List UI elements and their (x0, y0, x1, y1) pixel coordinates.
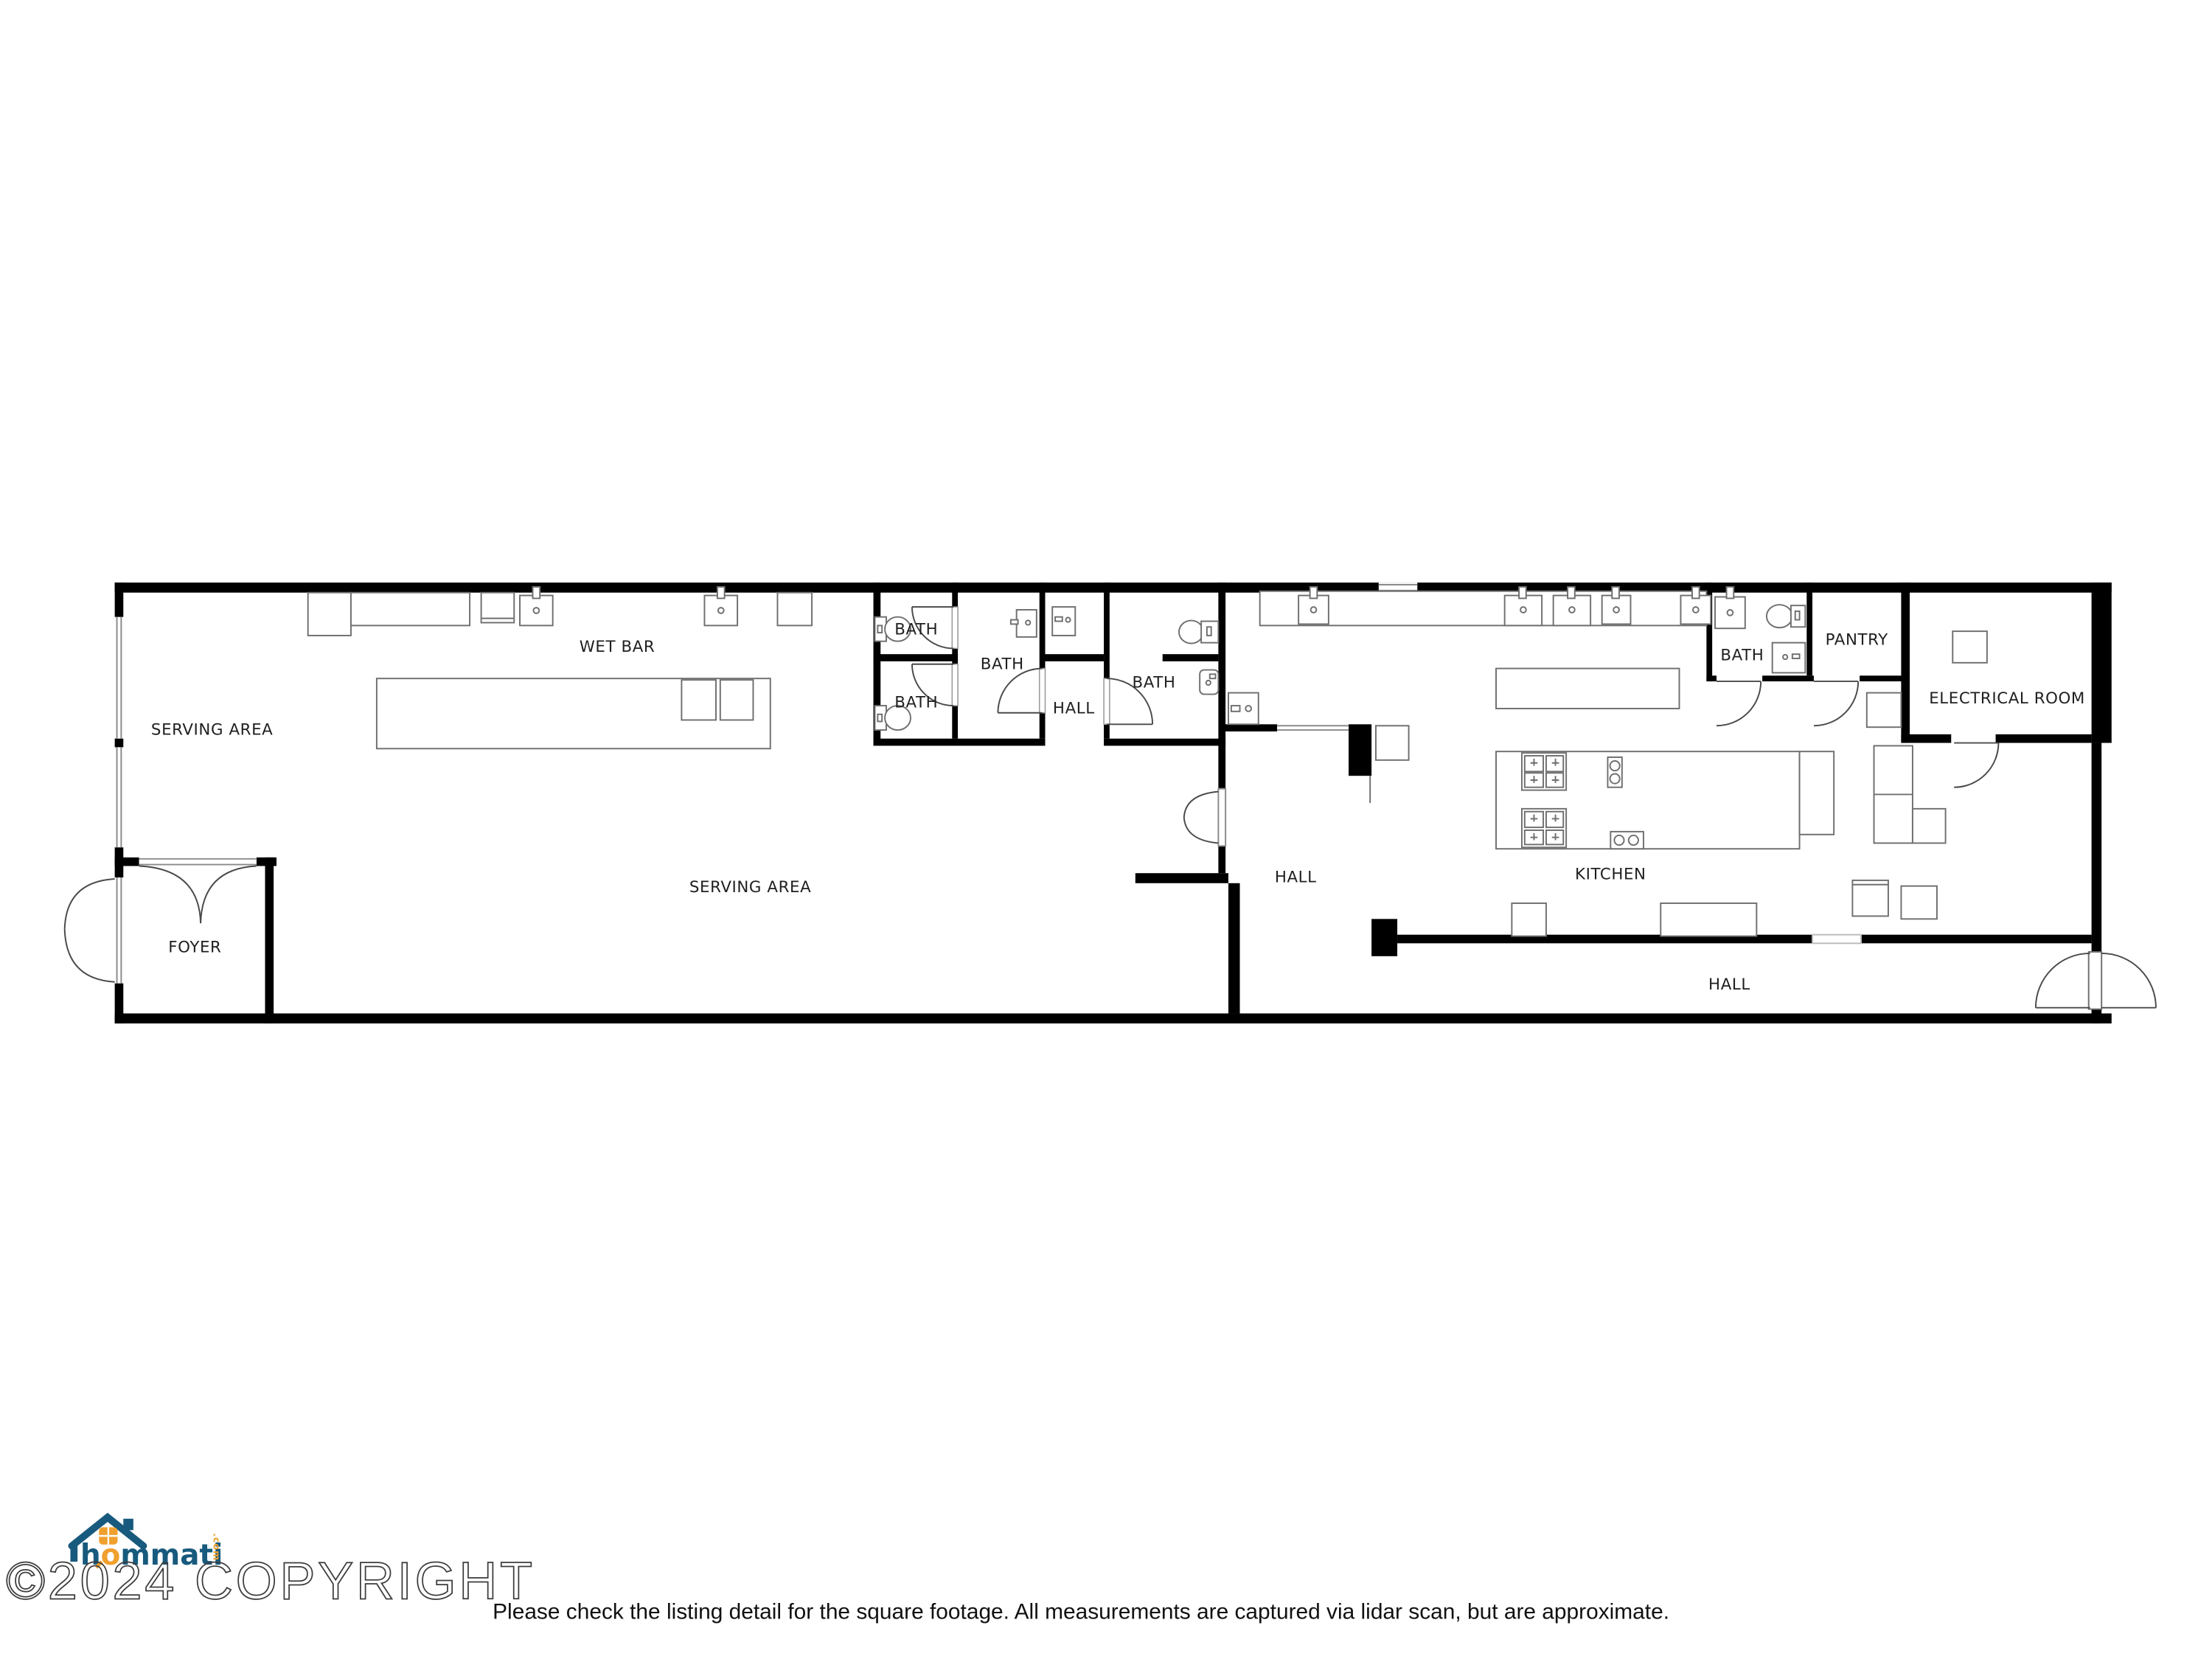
sink-symbol (1200, 670, 1218, 695)
wall-foyer-top (115, 858, 139, 866)
cabinet-symbol (1376, 726, 1409, 760)
wall-cluster-v1 (952, 582, 958, 739)
cabinet-symbol (1660, 903, 1756, 936)
sink-symbol (1011, 610, 1037, 637)
appliance-symbol (1800, 751, 1834, 835)
doors (65, 607, 2156, 1009)
wall-electrical-bottom (1996, 734, 2092, 743)
door-arc (65, 879, 115, 982)
wall-bottom (115, 1013, 2112, 1023)
door-opening (1218, 789, 1225, 846)
door-opening (1040, 669, 1046, 713)
wall-cluster-v3 (1104, 724, 1110, 738)
counter-symbol (351, 593, 470, 626)
wall-hall-top (1224, 724, 1277, 731)
wall-electrical-bottom (1901, 734, 1951, 743)
sink-symbol (704, 587, 737, 625)
electrical-panel-symbol (1952, 631, 1987, 663)
door-arc (1184, 792, 1219, 844)
wall-left-seg (115, 739, 124, 748)
wall-kitchen-pillar (1349, 724, 1371, 776)
copyright-watermark: ©2024 COPYRIGHT (6, 1551, 535, 1610)
label-kitchen: KITCHEN (1575, 866, 1646, 884)
label-wet-bar: WET BAR (580, 638, 655, 656)
wall-bath-right-mid (1163, 654, 1219, 661)
label-serving-area-west: SERVING AREA (151, 721, 273, 740)
label-hall-rear: HALL (1708, 975, 1750, 994)
wall-bath-east-bottom (1706, 675, 1717, 681)
cabinet-symbol (308, 593, 351, 636)
stove-symbol (1522, 809, 1566, 847)
door-arc (1717, 681, 1761, 726)
wall-left-seg (115, 984, 124, 1023)
sink-symbol (520, 587, 553, 625)
sink-symbol (1052, 607, 1075, 636)
logo-chimney-icon (123, 1519, 133, 1531)
wall-electrical-west (1901, 582, 1910, 742)
cooktop-symbol (1607, 757, 1621, 787)
cabinet-symbol (1913, 809, 1946, 844)
wall-divider-upper (1218, 582, 1225, 789)
appliance-symbol (1901, 886, 1937, 919)
door-arc (139, 866, 257, 924)
floor-plan-page: WET BAR SERVING AREA SERVING AREA FOYER … (0, 0, 2212, 1659)
wall-cluster-bottom (874, 739, 1046, 746)
label-bath-middle: BATH (981, 655, 1024, 673)
wall-cluster-v2 (1040, 582, 1046, 668)
floor-plan-svg: WET BAR SERVING AREA SERVING AREA FOYER … (0, 0, 2212, 1659)
sink-symbol (1773, 643, 1806, 673)
label-electrical-room: ELECTRICAL ROOM (1929, 689, 2085, 708)
label-hall-baths: HALL (1053, 699, 1095, 717)
wall-right-seg (2092, 1008, 2102, 1023)
wall-cluster-bottom (1104, 739, 1225, 746)
toilet-symbol (1179, 621, 1218, 644)
door-opening (1812, 935, 1861, 944)
appliance-symbol (1852, 880, 1888, 917)
wall-bath-east-bottom (1762, 675, 1814, 681)
wall-right-seg (2092, 743, 2102, 952)
wall-right-seg (2092, 582, 2112, 742)
cabinet-symbol (1512, 903, 1546, 936)
label-hall-center: HALL (1275, 869, 1317, 887)
wall-kitchen-pillar-low (1371, 919, 1397, 956)
label-foyer: FOYER (168, 939, 221, 957)
stove-symbol (1522, 753, 1566, 790)
label-bath-east: BATH (1720, 647, 1764, 665)
door-arc (1954, 743, 1998, 787)
door-opening (952, 664, 958, 706)
wall-cluster-v2 (1040, 713, 1046, 739)
label-bath-small-top: BATH (894, 621, 938, 639)
wall-bath-divider (874, 654, 959, 661)
cabinet-symbol (777, 593, 812, 626)
counter-symbol (1496, 669, 1679, 709)
door-opening (1951, 734, 1995, 743)
cabinet-symbol (1867, 693, 1902, 728)
wall-left-seg (115, 582, 124, 617)
sink-symbol (1715, 587, 1745, 628)
door-arc (2036, 952, 2156, 1009)
wall-cluster-v3 (1104, 582, 1110, 678)
label-bath-right: BATH (1133, 674, 1176, 692)
door-arc (998, 669, 1042, 713)
wall-divider-lower (1228, 883, 1240, 1014)
label-serving-area-main: SERVING AREA (689, 878, 811, 897)
wall-divider-stub (1135, 873, 1228, 883)
cooktop-symbol (1610, 832, 1644, 849)
toilet-symbol (1767, 605, 1805, 627)
wall-niche-bottom (1045, 654, 1104, 661)
wall-foyer-east (265, 858, 274, 1023)
sink-symbol (1228, 693, 1259, 725)
wall-rear-hall (1861, 935, 2092, 944)
door-opening (1104, 678, 1110, 724)
label-bath-small-bottom: BATH (894, 694, 938, 712)
wall-bath-pantry-divider (1806, 582, 1812, 675)
door-opening (952, 607, 958, 648)
bar-island-sink (720, 680, 754, 720)
disclaimer-text: Please check the listing detail for the … (493, 1600, 1669, 1624)
wall-divider-mid (1218, 846, 1225, 873)
fixtures (308, 587, 1987, 936)
door-arc (1814, 681, 1858, 726)
bar-island-sink (681, 680, 716, 720)
label-pantry: PANTRY (1826, 630, 1888, 649)
